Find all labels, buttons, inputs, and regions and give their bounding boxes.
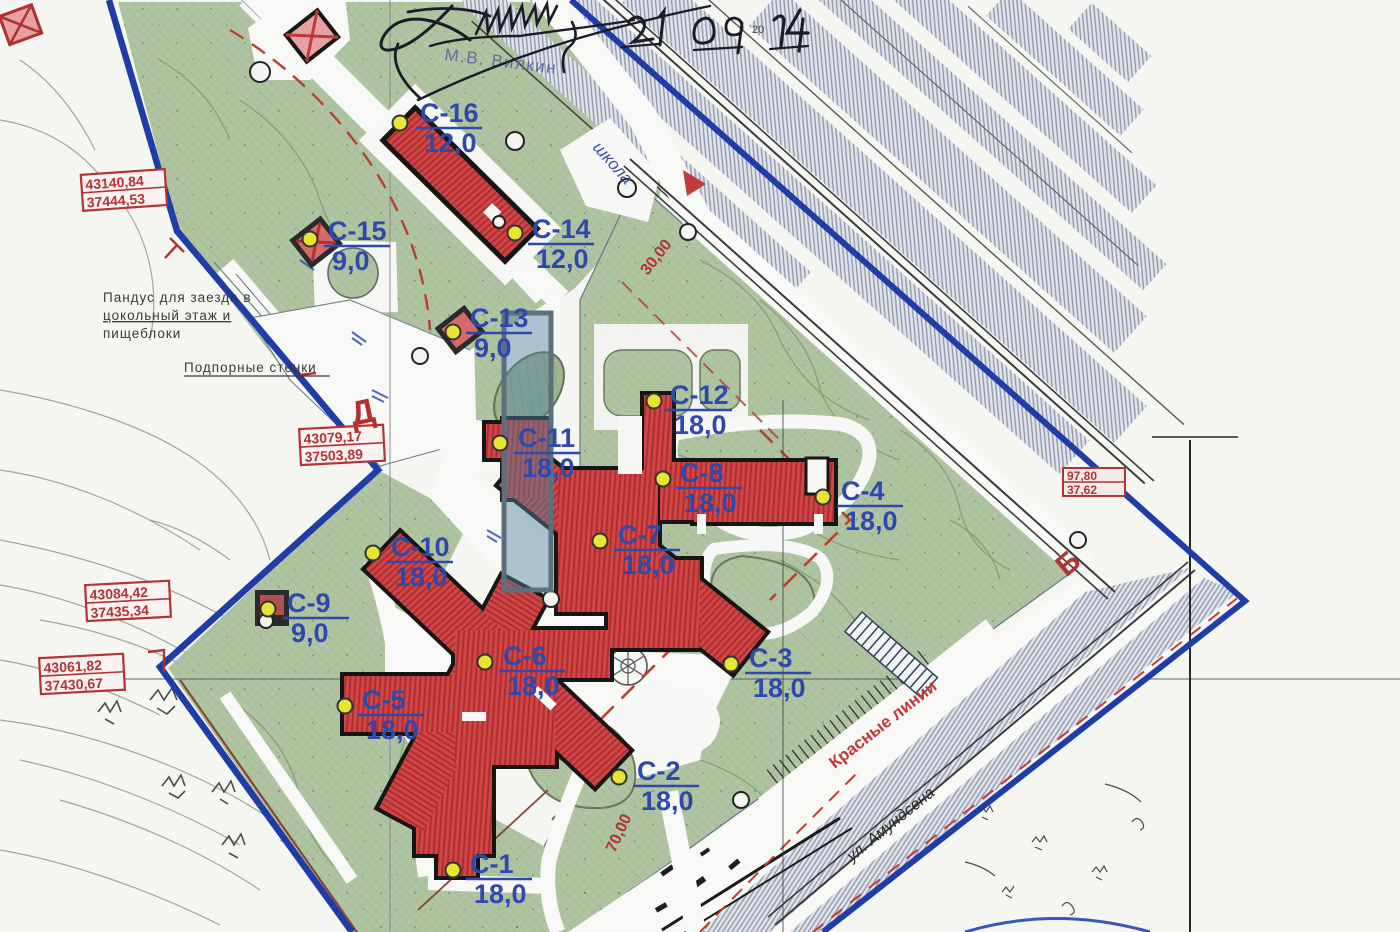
svg-text:С-5: С-5 [362, 685, 406, 715]
svg-text:37,62: 37,62 [1067, 483, 1097, 497]
svg-text:12,0: 12,0 [424, 128, 477, 158]
svg-text:37435,34: 37435,34 [90, 602, 149, 621]
svg-text:9,0: 9,0 [291, 618, 329, 648]
svg-text:37503,89: 37503,89 [304, 446, 363, 465]
svg-text:С-3: С-3 [749, 643, 793, 673]
svg-text:цокольный этаж и: цокольный этаж и [103, 308, 231, 323]
svg-text:С-1: С-1 [470, 849, 514, 879]
svg-text:9,0: 9,0 [474, 333, 512, 363]
svg-text:18,0: 18,0 [522, 453, 575, 483]
svg-text:18,0: 18,0 [395, 562, 448, 592]
svg-text:18,0: 18,0 [674, 410, 727, 440]
svg-text:18,0: 18,0 [474, 879, 527, 909]
svg-text:18,0: 18,0 [622, 550, 675, 580]
svg-text:18,0: 18,0 [366, 715, 419, 745]
svg-text:С-10: С-10 [391, 532, 450, 562]
svg-text:37430,67: 37430,67 [44, 675, 103, 694]
svg-text:18,0: 18,0 [641, 786, 694, 816]
svg-text:18,0: 18,0 [845, 506, 898, 536]
svg-text:пищеблоки: пищеблоки [103, 326, 181, 341]
svg-text:12,0: 12,0 [536, 244, 589, 274]
svg-text:С-15: С-15 [328, 216, 387, 246]
svg-text:С-11: С-11 [518, 423, 575, 453]
svg-text:С-4: С-4 [841, 476, 885, 506]
svg-text:18,0: 18,0 [507, 671, 560, 701]
svg-text:С-7: С-7 [618, 520, 662, 550]
svg-text:18,0: 18,0 [753, 673, 806, 703]
svg-text:97,80: 97,80 [1067, 469, 1097, 483]
svg-text:С-14: С-14 [532, 214, 591, 244]
svg-text:С-13: С-13 [470, 303, 529, 333]
svg-text:С-2: С-2 [637, 756, 681, 786]
svg-text:20: 20 [752, 24, 764, 36]
svg-text:18,0: 18,0 [684, 488, 737, 518]
svg-text:Пандус для заезда в: Пандус для заезда в [103, 290, 252, 305]
svg-text:Подпорные стенки: Подпорные стенки [184, 360, 317, 375]
svg-text:С-8: С-8 [680, 458, 724, 488]
svg-text:9,0: 9,0 [332, 246, 370, 276]
svg-text:С-16: С-16 [420, 98, 479, 128]
svg-text:С-12: С-12 [670, 380, 729, 410]
svg-text:43061,82: 43061,82 [43, 657, 102, 676]
svg-text:С-6: С-6 [503, 641, 547, 671]
svg-text:43084,42: 43084,42 [89, 584, 148, 603]
svg-text:С-9: С-9 [287, 588, 331, 618]
